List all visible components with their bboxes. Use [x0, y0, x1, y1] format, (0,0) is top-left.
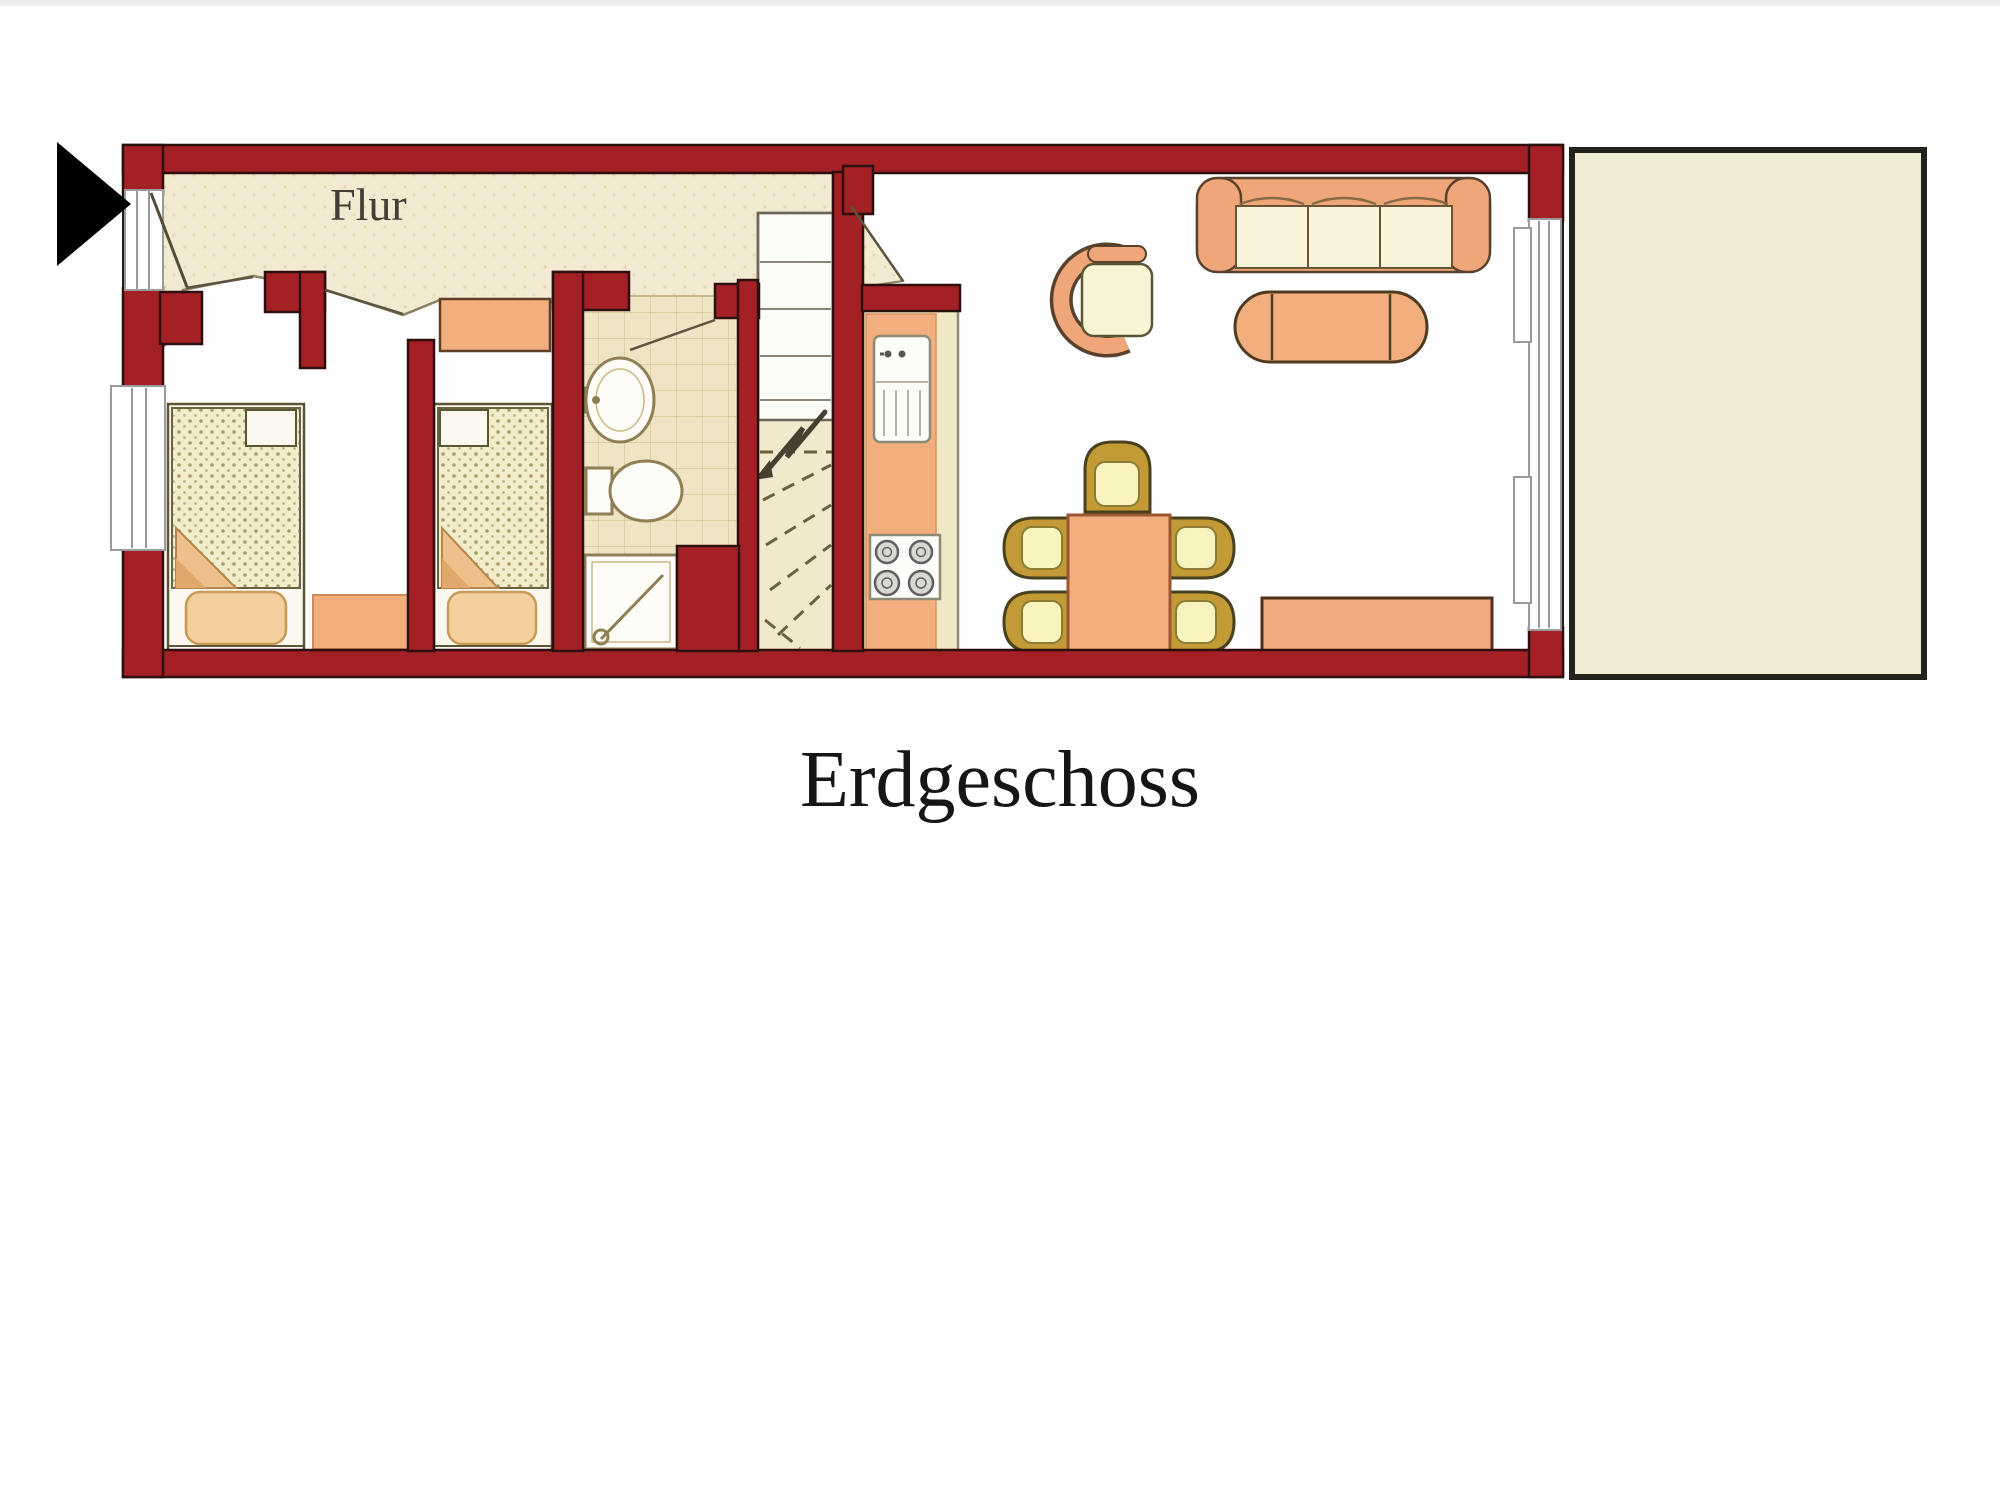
living-door-stub [843, 166, 873, 214]
single-bed-icon [168, 404, 304, 651]
sofa-icon [1197, 178, 1490, 272]
bathroom-left-wall [553, 272, 583, 651]
dining-table-icon [1068, 515, 1170, 653]
page-title: Erdgeschoss [800, 736, 1200, 824]
washbasin-icon [585, 358, 654, 442]
kitchen-sink-icon [874, 336, 930, 442]
dresser-icon [313, 595, 417, 649]
toilet-icon [586, 461, 682, 521]
terrace [1572, 150, 1924, 677]
stove-icon [870, 535, 940, 599]
bedroom-window [111, 386, 165, 550]
sideboard-icon [1262, 598, 1492, 652]
wall-bottom [123, 650, 1563, 677]
staircase [754, 213, 833, 651]
bedroom-divider-wall [408, 340, 434, 651]
shower-icon [585, 555, 677, 649]
floorplan-drawing: Flur Erdgeschoss [0, 0, 2000, 1500]
bathroom-right-wall [738, 280, 758, 651]
bedroom-middle [434, 299, 552, 651]
coffee-table-icon [1235, 292, 1427, 362]
kitchen-wall [862, 285, 960, 311]
floorplan-page: Flur Erdgeschoss [0, 0, 2000, 1500]
vestibule-wall-stub [160, 292, 202, 344]
hallway-label: Flur [330, 179, 407, 230]
single-bed-icon [434, 404, 552, 651]
stair-wall [833, 172, 863, 651]
kitchen [862, 311, 959, 651]
dresser-icon [440, 299, 550, 351]
stair-upper-flight [758, 213, 833, 420]
entrance-arrow-icon [57, 142, 131, 266]
top-edge-line [0, 0, 2000, 6]
